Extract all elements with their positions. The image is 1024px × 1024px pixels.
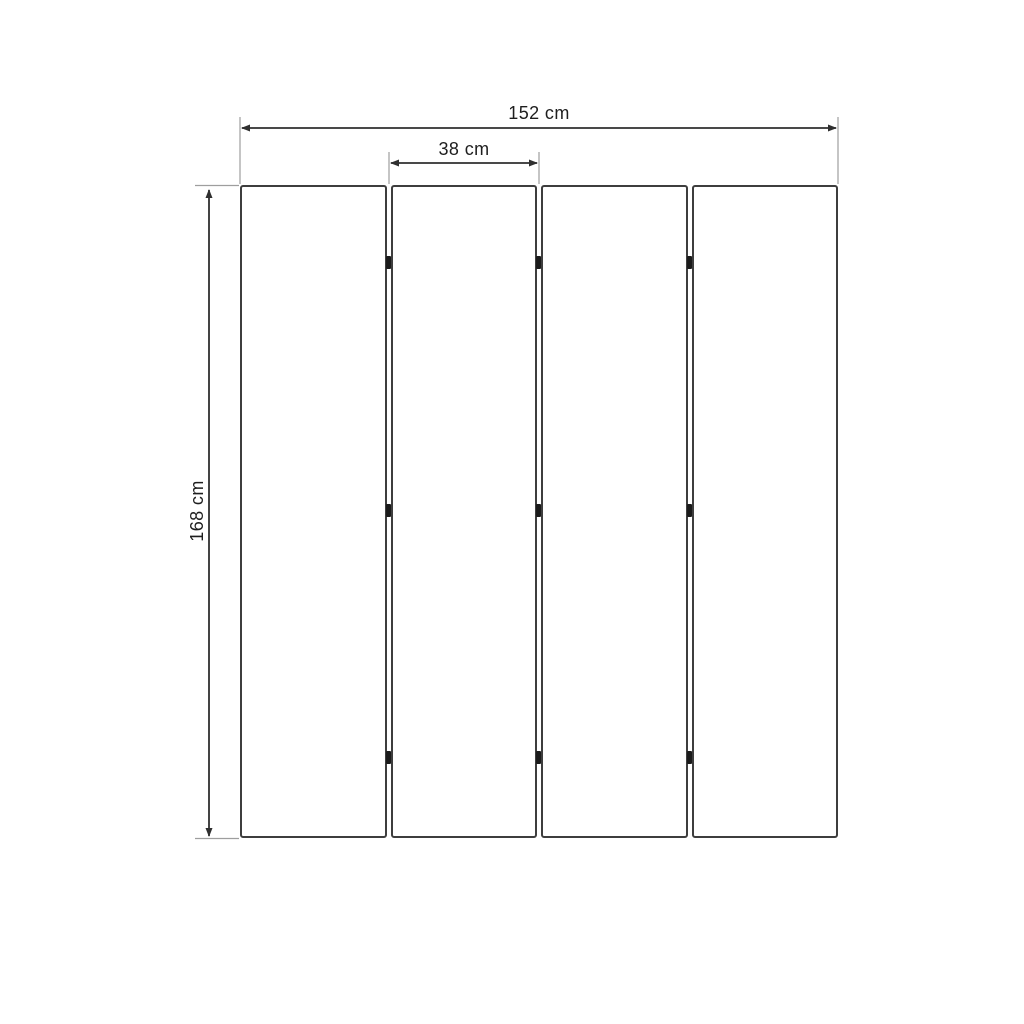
panel-4 (692, 185, 839, 838)
hinge-icon (386, 751, 391, 764)
panel-width-label: 38 cm (438, 140, 489, 158)
hinge-icon (687, 256, 692, 269)
total-width-label: 152 cm (508, 104, 569, 122)
hinge-icon (386, 504, 391, 517)
panel-1 (240, 185, 387, 838)
height-label: 168 cm (188, 480, 206, 541)
hinge-icon (536, 256, 541, 269)
panel-3 (541, 185, 688, 838)
hinge-icon (386, 256, 391, 269)
dimension-drawing-canvas: 152 cm 38 cm 168 cm (0, 0, 1024, 1024)
hinge-icon (536, 751, 541, 764)
hinge-icon (536, 504, 541, 517)
hinge-icon (687, 751, 692, 764)
hinge-icon (687, 504, 692, 517)
panel-2 (391, 185, 538, 838)
